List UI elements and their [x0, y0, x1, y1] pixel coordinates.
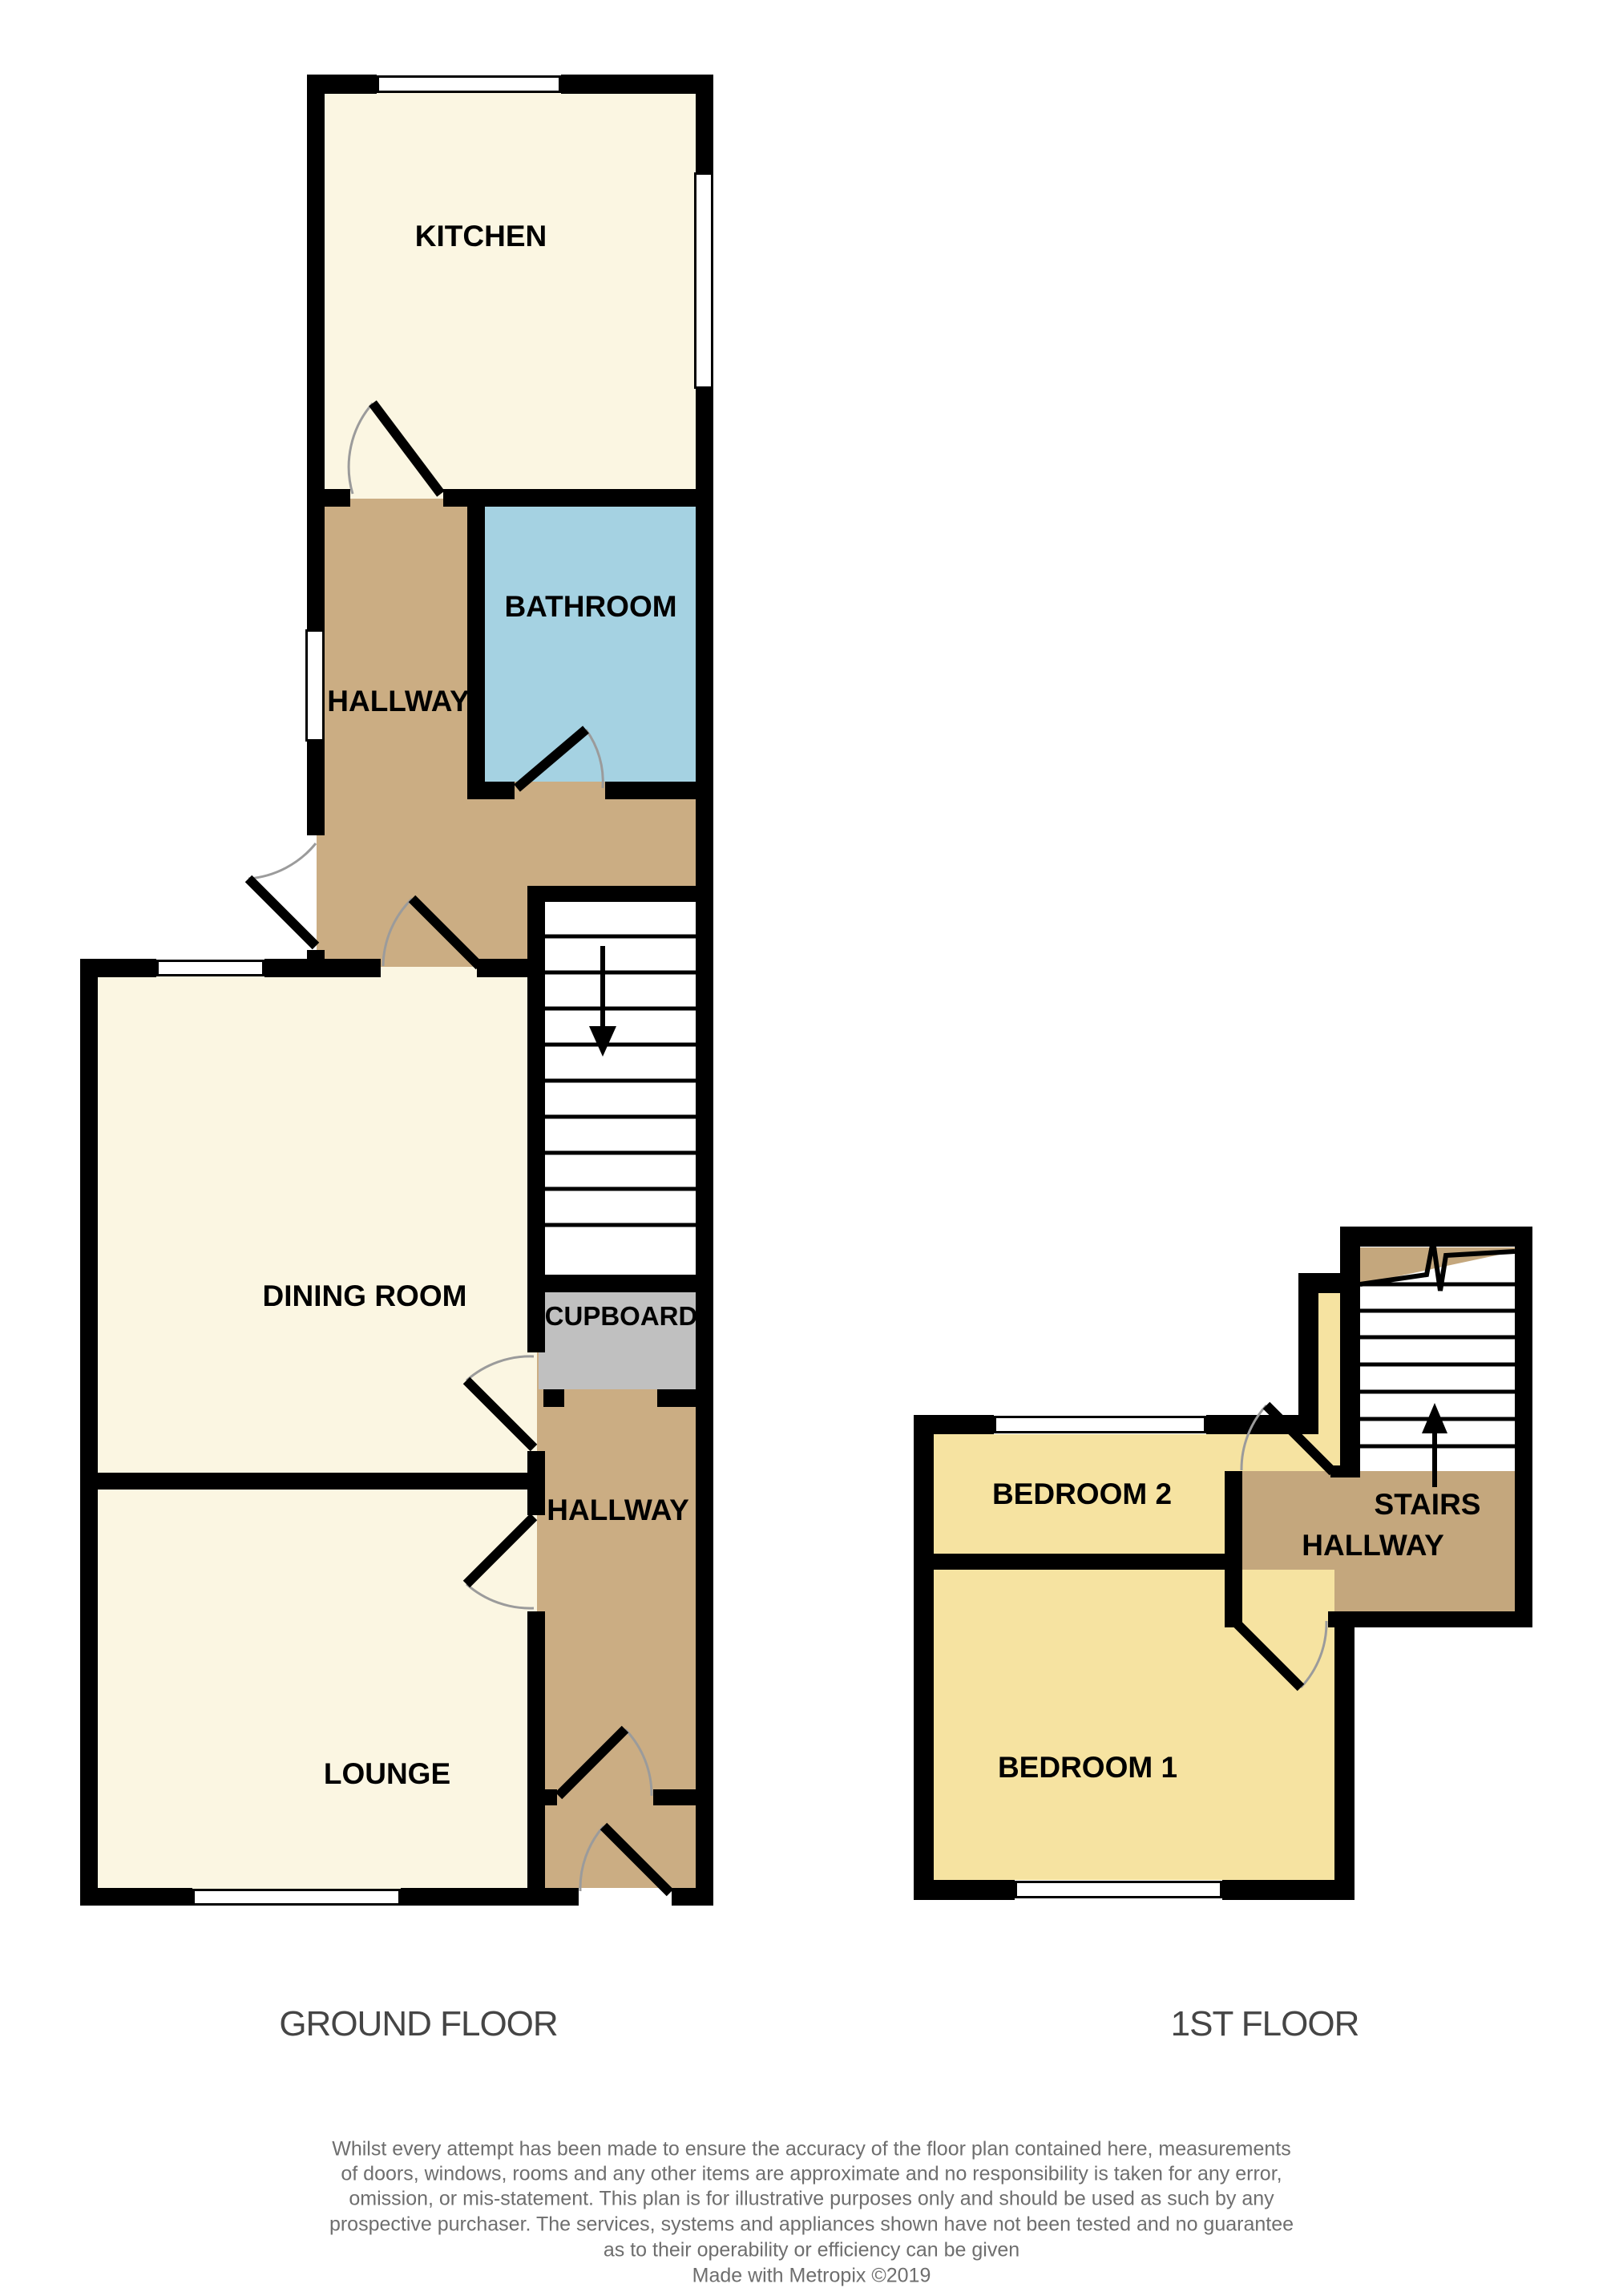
bedroom2-door — [1241, 1405, 1333, 1472]
kitchen-door — [349, 403, 441, 494]
cupboard-label: CUPBOARD — [545, 1301, 698, 1332]
stairs-hallway-label: HALLWAY — [1302, 1529, 1443, 1562]
hallway-upper-label: HALLWAY — [327, 685, 469, 718]
bedroom1-label: BEDROOM 1 — [998, 1751, 1177, 1785]
disclaimer-line: of doors, windows, rooms and any other i… — [0, 2163, 1623, 2186]
lounge-label: LOUNGE — [324, 1757, 450, 1791]
stairs-label: STAIRS — [1375, 1488, 1481, 1522]
disclaimer-line: as to their operability or efficiency ca… — [0, 2239, 1623, 2262]
hallway-partition-door — [559, 1729, 652, 1796]
kitchen-label: KITCHEN — [415, 220, 547, 253]
disclaimer-line: Whilst every attempt has been made to en… — [0, 2138, 1623, 2161]
side-entrance-door — [248, 843, 316, 946]
bathroom-door — [517, 730, 603, 788]
bedroom2-label: BEDROOM 2 — [992, 1477, 1172, 1511]
first-floor-title: 1ST FLOOR — [1171, 2004, 1359, 2044]
ground-floor-title: GROUND FLOOR — [279, 2004, 557, 2044]
stairs-down-arrow-icon — [589, 946, 616, 1057]
plan-symbols — [0, 0, 1623, 2296]
metropix-credit: Made with Metropix ©2019 — [0, 2265, 1623, 2288]
stairs-ground-treads — [545, 936, 696, 1225]
bedroom1-door — [1234, 1621, 1326, 1688]
disclaimer-line: prospective purchaser. The services, sys… — [0, 2213, 1623, 2237]
dining-lower-door — [466, 1356, 534, 1448]
front-entrance-door — [580, 1826, 670, 1893]
lounge-door — [466, 1517, 534, 1608]
hallway-lower-label: HALLWAY — [547, 1494, 688, 1527]
floorplan: KITCHEN BATHROOM HALLWAY DINING ROOM CUP… — [0, 0, 1623, 2296]
dining-upper-door — [383, 899, 479, 966]
bathroom-label: BATHROOM — [504, 590, 676, 624]
dining-room-label: DINING ROOM — [263, 1279, 467, 1313]
disclaimer-line: omission, or mis-statement. This plan is… — [0, 2188, 1623, 2211]
